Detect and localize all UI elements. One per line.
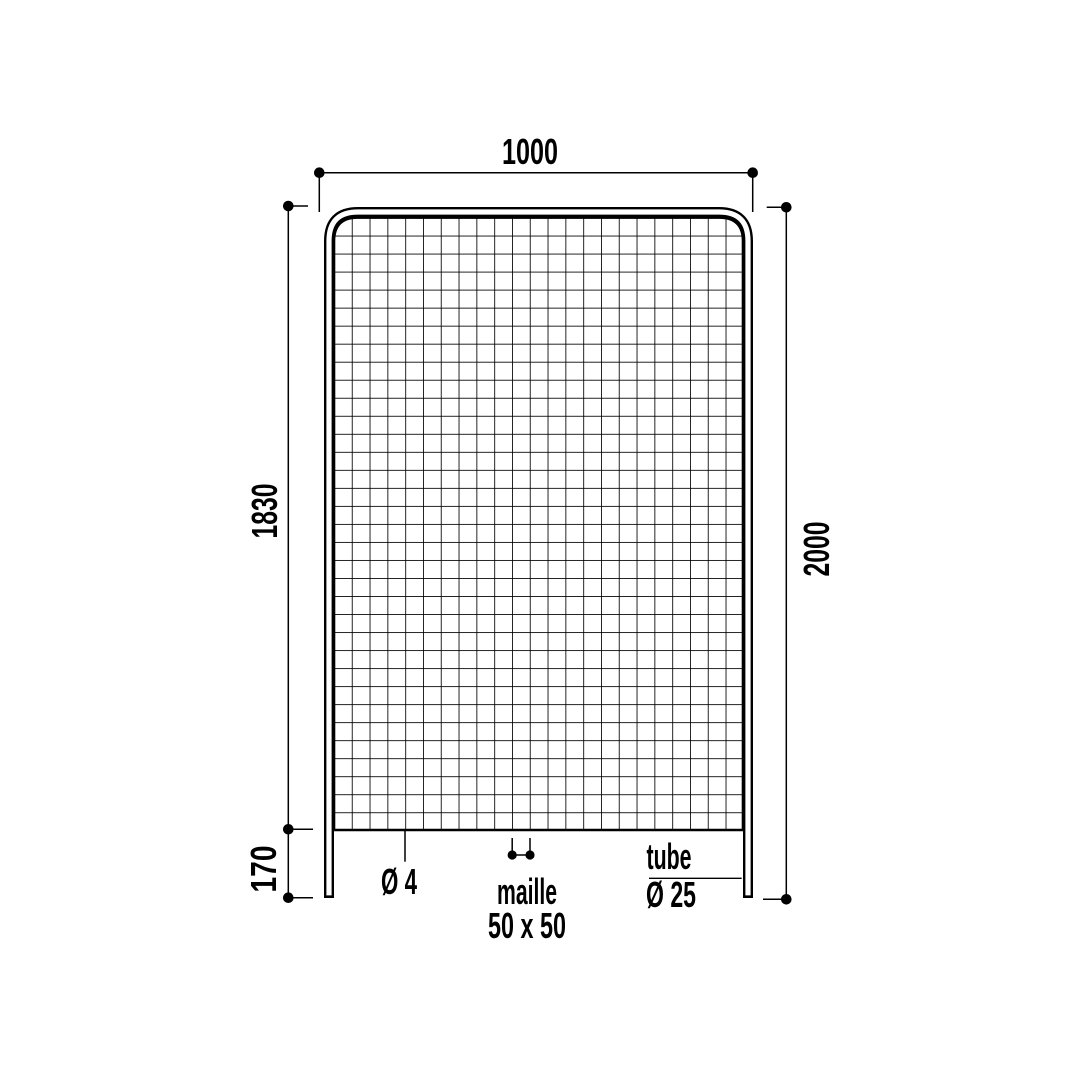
dimension-top-width: 1000: [314, 131, 758, 212]
dimension-dot: [747, 167, 758, 178]
annotation-tube: tube Ø 25: [646, 836, 742, 915]
label-mesh-size: 50 x 50: [488, 905, 566, 946]
dimension-dot: [781, 894, 792, 905]
label-tube-diameter: Ø 25: [646, 874, 696, 915]
dimension-total-height: 2000: [763, 202, 837, 905]
fence-panel-drawing-canvas: 1000 1830 170 2000: [0, 0, 1080, 1080]
dimension-dot: [283, 201, 294, 212]
mesh-panel: [334, 218, 743, 830]
fence-panel-technical-drawing: 1000 1830 170 2000: [0, 0, 1080, 1080]
dimension-dot: [314, 167, 325, 178]
annotation-wire-diameter: Ø 4: [381, 831, 417, 902]
label-mesh-height: 1830: [244, 484, 285, 539]
annotation-mesh-size: maille 50 x 50: [488, 838, 566, 946]
dimension-dot: [525, 850, 534, 859]
dimension-mesh-height: 1830: [244, 201, 313, 835]
dimension-dot: [508, 850, 517, 859]
label-total-height: 2000: [796, 522, 837, 577]
label-ground-clearance: 170: [243, 846, 284, 893]
dimension-dot: [283, 892, 294, 903]
dimension-ground-clearance: 170: [243, 829, 313, 903]
label-tube-name: tube: [647, 836, 692, 877]
label-top-width: 1000: [502, 131, 558, 172]
label-wire-diameter: Ø 4: [381, 861, 417, 902]
dimension-dot: [781, 202, 792, 213]
